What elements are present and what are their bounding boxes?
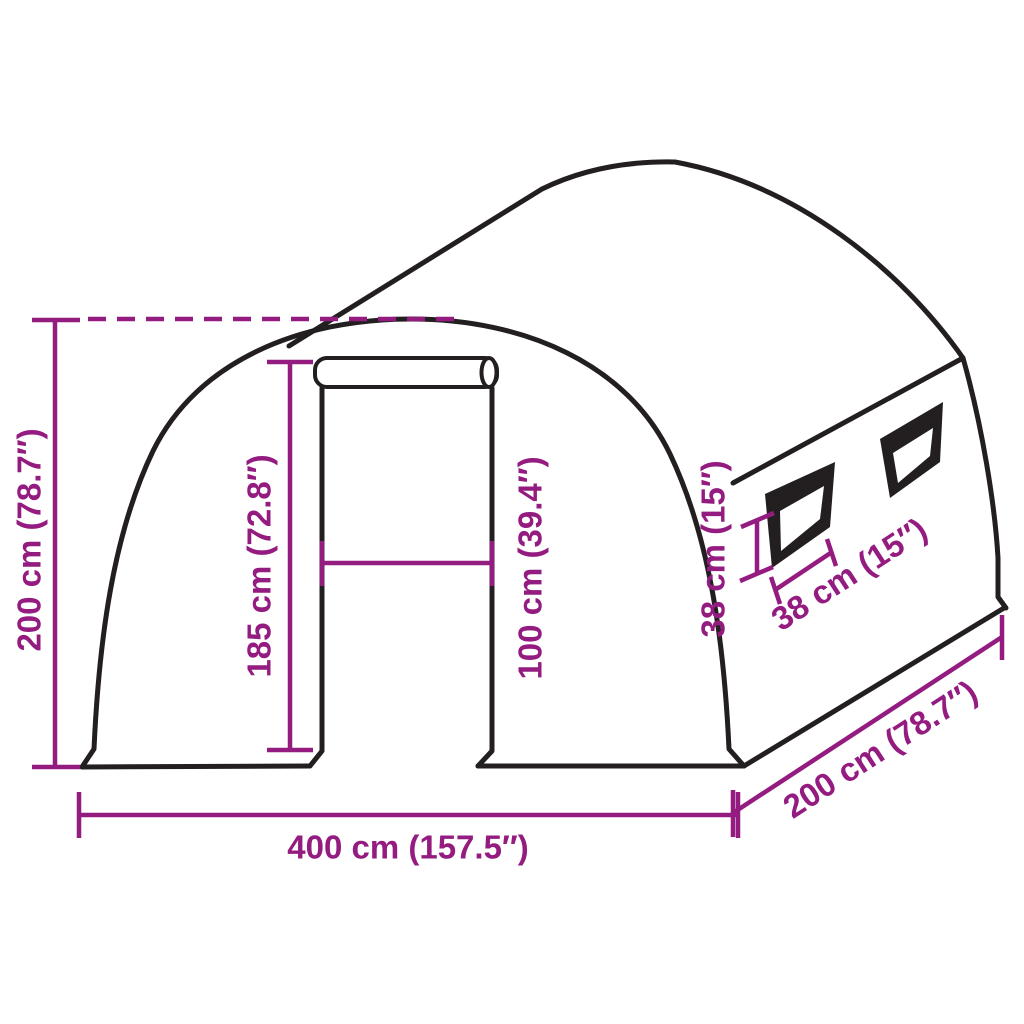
door-roller: [315, 358, 497, 387]
ground-line-left: [82, 766, 310, 767]
total-depth-dimension-line: [733, 615, 1002, 837]
total-height-label: 200 cm (78.7″): [11, 428, 48, 651]
door-roller-end-cap: [482, 358, 497, 387]
greenhouse-dimension-diagram: 200 cm (78.7″) 185 cm (72.8″) 100 cm (39…: [0, 0, 1024, 1024]
door-width-dimension-line: [322, 541, 492, 586]
total-width-label: 400 cm (157.5″): [287, 829, 528, 866]
window-height-label: 38 cm (15″): [695, 460, 732, 637]
diagram-canvas: 200 cm (78.7″) 185 cm (72.8″) 100 cm (39…: [0, 0, 1024, 1024]
door-height-label: 185 cm (72.8″): [241, 454, 278, 677]
total-depth-label: 200 cm (78.7″): [776, 673, 983, 826]
door-width-label: 100 cm (39.4″): [512, 456, 549, 679]
